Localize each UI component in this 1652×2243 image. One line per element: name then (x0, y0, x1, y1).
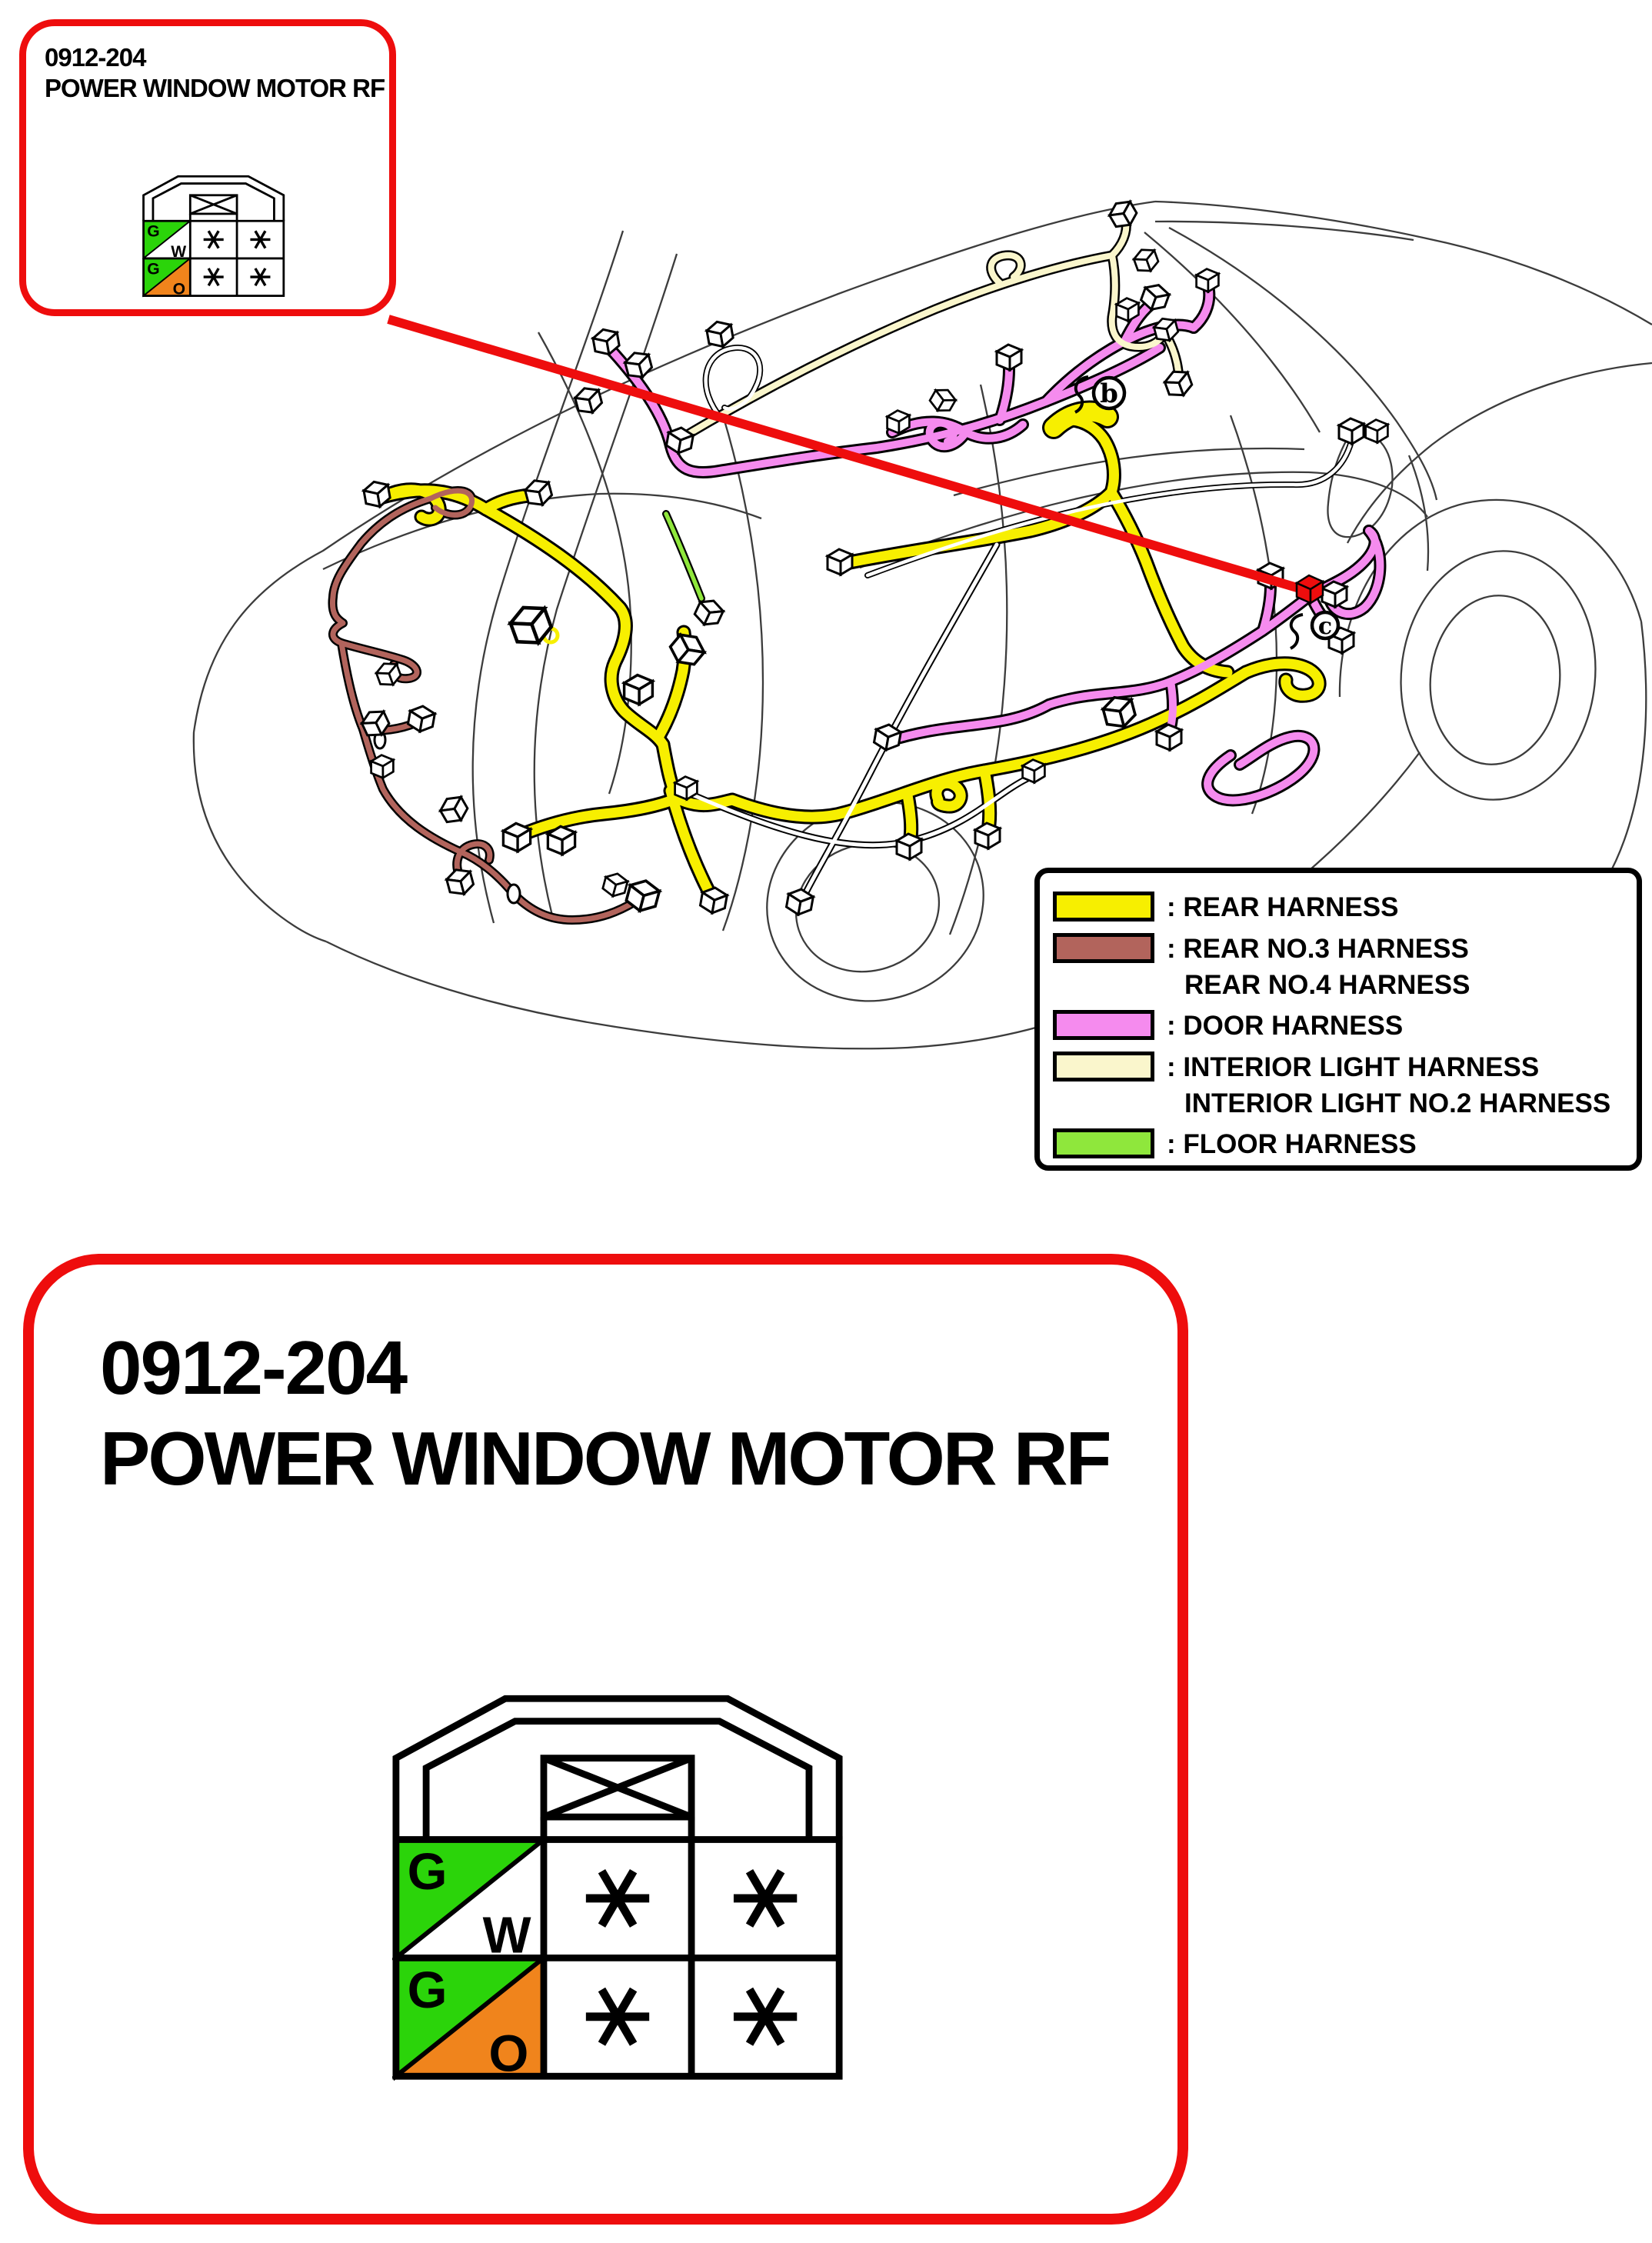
connector-title-small: POWER WINDOW MOTOR RF (45, 74, 385, 103)
legend-swatch-rear-no3 (1053, 933, 1154, 963)
connector-diagram-large (392, 1632, 844, 2085)
connector-code-small: 0912-204 (45, 43, 145, 72)
legend-item-rear-harness: : REAR HARNESS (1053, 889, 1637, 925)
legend-swatch-interior-light (1053, 1052, 1154, 1082)
legend-label: : FLOOR HARNESS (1167, 1126, 1417, 1162)
connector-diagram-small (142, 155, 285, 298)
svg-text:c: c (1318, 613, 1332, 640)
manual-page: { "page": {"background": "#FFFFFF"}, "co… (0, 0, 1652, 2243)
target-connector-marker (1297, 575, 1323, 603)
legend-item-door-harness: : DOOR HARNESS (1053, 1008, 1637, 1044)
connector-title-large: POWER WINDOW MOTOR RF (100, 1415, 1110, 1502)
legend-label: : REAR NO.3 HARNESS (1167, 931, 1470, 967)
legend-label: : DOOR HARNESS (1167, 1008, 1403, 1044)
harness-color-legend: : REAR HARNESS : REAR NO.3 HARNESS REAR … (1034, 868, 1642, 1171)
legend-item-floor-harness: : FLOOR HARNESS (1053, 1126, 1637, 1162)
legend-label: REAR NO.4 HARNESS (1167, 967, 1470, 1003)
legend-swatch-rear (1053, 892, 1154, 922)
grommets (375, 628, 558, 903)
red-callout-leader-line (388, 319, 1307, 591)
connector-code-large: 0912-204 (100, 1325, 406, 1411)
svg-text:b: b (1100, 378, 1118, 409)
rear-no3-no4-harness-paths (332, 491, 635, 920)
connector-callout-large: 0912-204 POWER WINDOW MOTOR RF (23, 1254, 1188, 2225)
legend-label: : INTERIOR LIGHT HARNESS (1167, 1049, 1610, 1085)
floor-harness-paths (666, 514, 701, 598)
legend-label: : REAR HARNESS (1167, 889, 1398, 925)
legend-item-interior-light-harness: : INTERIOR LIGHT HARNESS INTERIOR LIGHT … (1053, 1049, 1637, 1121)
legend-item-rear-no3-no4-harness: : REAR NO.3 HARNESS REAR NO.4 HARNESS (1053, 931, 1637, 1003)
legend-swatch-door (1053, 1010, 1154, 1040)
legend-label: INTERIOR LIGHT NO.2 HARNESS (1167, 1085, 1610, 1121)
connector-callout-small: 0912-204 POWER WINDOW MOTOR RF (19, 19, 396, 316)
harness-casings (332, 222, 1380, 920)
legend-swatch-floor (1053, 1128, 1154, 1158)
